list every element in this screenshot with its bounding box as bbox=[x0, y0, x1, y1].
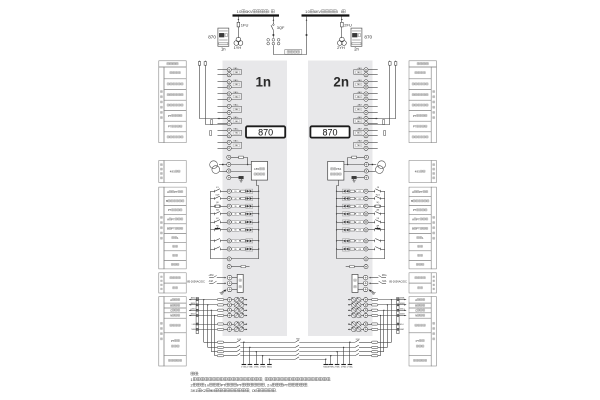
svg-text:PT: PT bbox=[174, 190, 178, 194]
svg-text:B: B bbox=[167, 227, 169, 231]
svg-text::: : bbox=[198, 371, 199, 376]
svg-text:870: 870 bbox=[208, 35, 216, 40]
svg-text:PT: PT bbox=[416, 227, 420, 231]
svg-text:1n: 1n bbox=[255, 75, 271, 90]
svg-text:1YMc: 1YMc bbox=[254, 366, 259, 368]
svg-text:A: A bbox=[412, 190, 414, 194]
svg-text:2YMc: 2YMc bbox=[334, 366, 339, 368]
svg-text:K1: K1 bbox=[193, 388, 198, 393]
svg-text:.: . bbox=[307, 383, 308, 388]
svg-text:,: , bbox=[249, 388, 250, 393]
svg-text:.: . bbox=[276, 388, 277, 393]
svg-text:1: 1 bbox=[191, 377, 193, 382]
svg-text:CK: CK bbox=[252, 388, 257, 393]
svg-text:A: A bbox=[167, 190, 169, 194]
svg-text:PT: PT bbox=[416, 217, 420, 221]
svg-text:PT: PT bbox=[416, 339, 420, 343]
svg-text:PT: PT bbox=[168, 125, 172, 129]
svg-text:B: B bbox=[415, 304, 417, 308]
svg-text:3QF: 3QF bbox=[277, 25, 285, 30]
svg-text:10: 10 bbox=[237, 9, 243, 14]
svg-text:PT: PT bbox=[221, 383, 226, 388]
svg-text:2YMa: 2YMa bbox=[347, 366, 353, 368]
svg-text:N: N bbox=[415, 314, 417, 318]
svg-text:B: B bbox=[412, 227, 414, 231]
svg-text:.: . bbox=[330, 377, 331, 382]
svg-text:1YMN: 1YMN bbox=[260, 366, 266, 368]
svg-text:PT: PT bbox=[413, 125, 417, 129]
svg-text:2n: 2n bbox=[333, 75, 349, 90]
svg-text:A: A bbox=[170, 298, 172, 302]
svg-text:1FU: 1FU bbox=[241, 23, 249, 28]
svg-text:2n: 2n bbox=[354, 47, 359, 52]
svg-text:,: , bbox=[265, 383, 266, 388]
svg-text:85-265VAC/DC: 85-265VAC/DC bbox=[389, 279, 407, 283]
svg-text:A: A bbox=[412, 217, 414, 221]
svg-text:6KV: 6KV bbox=[314, 9, 322, 14]
svg-text:870: 870 bbox=[322, 128, 337, 138]
svg-text:2: 2 bbox=[191, 383, 193, 388]
svg-text:PT: PT bbox=[168, 208, 172, 212]
svg-text:1YMb: 1YMb bbox=[247, 366, 253, 368]
svg-text:10: 10 bbox=[305, 9, 311, 14]
svg-text:PT: PT bbox=[237, 383, 242, 388]
svg-text:I: I bbox=[268, 9, 269, 14]
svg-text:PT: PT bbox=[413, 208, 417, 212]
svg-text:PT: PT bbox=[419, 190, 423, 194]
svg-text:485: 485 bbox=[415, 170, 420, 174]
svg-text:KM: KM bbox=[296, 338, 299, 340]
svg-text:2YH: 2YH bbox=[337, 45, 345, 50]
svg-text:2YMN: 2YMN bbox=[328, 366, 334, 368]
svg-text:B: B bbox=[411, 199, 413, 203]
svg-text:C: C bbox=[170, 308, 172, 312]
svg-text:PT: PT bbox=[168, 114, 172, 118]
svg-text:1n: 1n bbox=[204, 383, 209, 388]
svg-text:1n: 1n bbox=[221, 47, 226, 52]
svg-text:,: , bbox=[262, 377, 263, 382]
svg-text:PT: PT bbox=[171, 339, 175, 343]
svg-text:B: B bbox=[166, 199, 168, 203]
svg-text:485: 485 bbox=[170, 170, 175, 174]
svg-text:2CK: 2CK bbox=[356, 339, 361, 341]
svg-text:2n: 2n bbox=[267, 383, 272, 388]
svg-text:1YH: 1YH bbox=[234, 45, 242, 50]
svg-text:B: B bbox=[170, 304, 172, 308]
svg-text:PT: PT bbox=[171, 227, 175, 231]
svg-text:A: A bbox=[415, 298, 417, 302]
svg-text:N600: N600 bbox=[267, 366, 273, 368]
svg-text:2YMb: 2YMb bbox=[341, 366, 347, 368]
svg-text:PT: PT bbox=[171, 217, 175, 221]
svg-text:PT: PT bbox=[413, 114, 417, 118]
svg-text:6KV: 6KV bbox=[245, 9, 253, 14]
svg-text:85-265VAC/DC: 85-265VAC/DC bbox=[187, 279, 205, 283]
svg-text:1CK: 1CK bbox=[237, 339, 242, 341]
svg-text:PT: PT bbox=[283, 383, 288, 388]
svg-text:C: C bbox=[415, 308, 417, 312]
svg-text:870: 870 bbox=[258, 128, 273, 138]
svg-text:A: A bbox=[167, 217, 169, 221]
svg-text:N: N bbox=[170, 314, 172, 318]
svg-text:N600: N600 bbox=[323, 366, 329, 368]
svg-text:870: 870 bbox=[364, 35, 372, 40]
svg-text:2FU: 2FU bbox=[344, 23, 352, 28]
svg-text:KM: KM bbox=[210, 388, 215, 393]
svg-text:K2: K2 bbox=[201, 388, 206, 393]
